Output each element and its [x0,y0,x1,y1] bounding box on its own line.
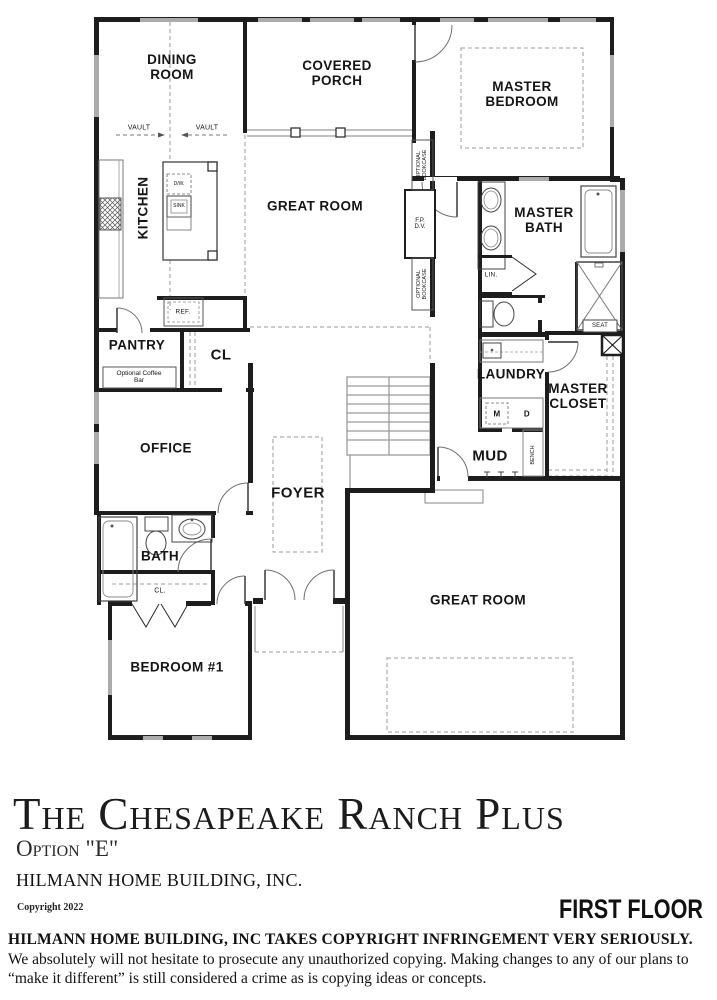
master-bedroom-window [560,18,596,22]
island-post [208,251,217,260]
copyright-note: Copyright 2022 [17,902,83,913]
office-window [94,432,99,464]
master-bedroom-side-window [610,55,614,127]
dryer-note: D [524,410,530,419]
rear-entry-door-arc [438,447,468,477]
porch-column [291,128,300,137]
room-label-laundry: LAUNDRY [456,366,566,381]
porch-window [258,18,302,22]
vault-arrowheads [158,133,188,138]
porch-door-gap [411,25,417,60]
washer-dryer-counter [480,398,543,428]
room-label-covered-porch: COVERED PORCH [290,58,385,88]
linen-note: LIN. [485,272,498,279]
shower-head [595,263,603,267]
island-post [208,162,217,171]
room-label-great-room-lower: GREAT ROOM [388,592,568,607]
washer-note: M [493,410,500,419]
dining-top-window [140,18,198,22]
legal-notice: HILMANN HOME BUILDING, INC TAKES COPYRIG… [8,930,709,989]
room-label-foyer: FOYER [271,486,325,503]
room-label-bedroom1-closet: CL. [154,588,166,595]
front-door-right-arc [304,570,334,600]
bath-door-arc [178,539,211,572]
bifold-door [161,604,188,627]
room-label-master-closet: MASTER CLOSET [538,381,618,411]
front-door-left-arc [265,570,295,600]
bedroom1-window [192,736,212,740]
office-window [94,392,99,424]
master-bedroom-window [488,18,548,22]
room-label-mud: MUD [472,449,507,466]
bench-note: BENCH [530,445,536,464]
refrigerator-note: REF. [176,309,191,316]
room-label-closet-hall: CL [211,348,232,365]
plan-title: The Chesapeake Ranch Plus [13,788,565,840]
vault-note: VAULT [196,125,219,132]
coffee-bar-note: Optional Coffee Bar [114,370,164,384]
first-floor-plan: DINING ROOM COVERED PORCH MASTER BEDROOM… [0,0,717,760]
legal-notice-rest: We absolutely will not hesitate to prose… [8,951,689,988]
room-label-dining: DINING ROOM [132,52,212,82]
range [100,198,121,230]
bifold-door [132,604,159,627]
room-label-master-bath: MASTER BATH [502,205,587,235]
staircase [347,377,430,488]
room-label-bedroom1: BEDROOM #1 [130,659,225,674]
optional-bookcase-note: OPTIONAL BOOKCASE [416,263,428,305]
tub [99,517,137,601]
fireplace-note: F.P. D.V. [412,218,428,230]
toilet-tank [145,517,168,531]
plan-option: Option "E" [16,836,118,862]
floor-plan-sheet: DINING ROOM COVERED PORCH MASTER BEDROOM… [0,0,717,1000]
seat-note: SEAT [592,323,608,329]
optional-bookcase-note: OPTIONAL BOOKCASE [416,144,428,186]
room-label-kitchen: KITCHEN [135,148,150,268]
room-label-bath: BATH [141,548,179,563]
master-bath-entry [519,177,549,181]
office-door-arc [218,483,248,513]
dining-side-window [94,55,99,117]
great-room-dashed-area [387,658,573,732]
pantry-door-arc [117,308,142,333]
room-label-office: OFFICE [121,440,211,455]
porch-to-master-door-arc [415,25,452,62]
linen-door [512,257,536,291]
tub-window [620,190,625,252]
bedroom1-door-arc [217,576,245,604]
porch-window [310,18,354,22]
room-label-master-bedroom: MASTER BEDROOM [475,79,570,109]
vault-note: VAULT [128,125,151,132]
porch-column [336,128,345,137]
sink-note: SINK [173,203,185,209]
room-label-great-room-upper: GREAT ROOM [235,198,395,213]
legal-notice-bold: HILMANN HOME BUILDING, INC TAKES COPYRIG… [8,931,693,948]
room-label-pantry: PANTRY [92,337,182,352]
dishwasher-note: D/W. [174,181,185,187]
bedroom1-side-window [108,640,112,695]
master-bedroom-window [440,18,474,22]
floor-label: FIRST FLOOR [559,894,703,925]
master-bedroom-door-gap [424,177,457,181]
bedroom1-window [143,736,163,740]
toilet-bowl [494,302,514,326]
builder-name: HILMANN HOME BUILDING, INC. [16,870,303,891]
porch-window [362,18,400,22]
